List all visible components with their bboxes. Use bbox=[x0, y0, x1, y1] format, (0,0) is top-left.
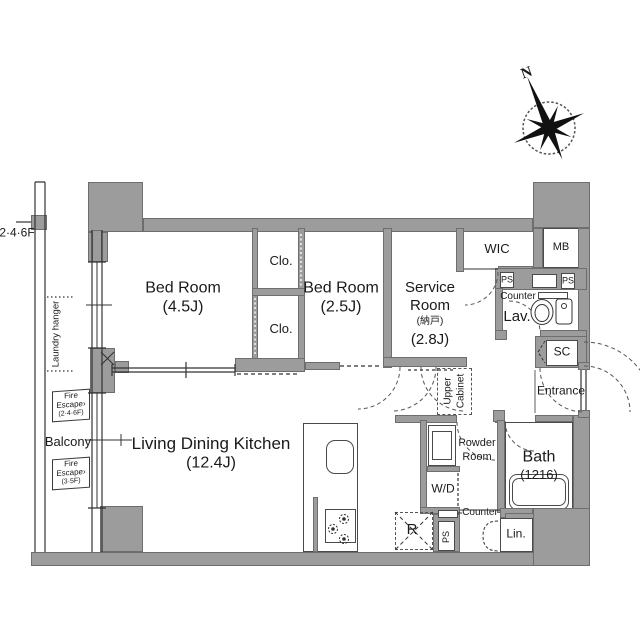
shoe-closet-label: SC bbox=[554, 346, 571, 359]
entrance-label: Entrance bbox=[537, 385, 585, 398]
bathtub-inner bbox=[512, 478, 566, 506]
bath-name: Bath bbox=[523, 450, 556, 467]
bedroom1-size: (4.5J) bbox=[163, 300, 204, 317]
wall-bottom bbox=[31, 552, 590, 566]
balcony-label: Balcony bbox=[45, 435, 91, 449]
ldk-name: Living Dining Kitchen bbox=[132, 435, 291, 453]
bedroom2-door-arc bbox=[358, 367, 400, 409]
ps-label-c: PS bbox=[441, 531, 451, 543]
wall-wd-left bbox=[420, 420, 427, 514]
closet2-label: Clo. bbox=[269, 322, 292, 336]
pillar-bottom-left bbox=[100, 506, 143, 552]
fire-escape-box-2: Fire Escape› (3·5F) bbox=[52, 457, 90, 491]
floor-plan: Fire Escape› (2·4·6F) Fire Escape› (3·5F… bbox=[0, 0, 640, 640]
wall-service-left bbox=[383, 228, 392, 368]
linen-label: Lin. bbox=[506, 528, 525, 541]
closet1-label: Clo. bbox=[269, 254, 292, 268]
service-room-jp: (納戸) bbox=[417, 317, 444, 328]
wall-powder-bath-divider bbox=[497, 420, 505, 513]
wall-closet-mid bbox=[252, 288, 305, 296]
pillar-top-left bbox=[88, 182, 143, 232]
powder-vanity-basin bbox=[432, 431, 452, 460]
wall-closet-bottom bbox=[235, 358, 305, 372]
upper-cabinet-label-2: Cabinet bbox=[456, 374, 467, 408]
entrance-jamb-bottom bbox=[578, 410, 590, 418]
wall-bath-top bbox=[535, 415, 573, 422]
ps-label-b: PS bbox=[562, 276, 574, 285]
wall-bedroom2-bottom bbox=[305, 362, 340, 370]
balcony-rail-lines bbox=[35, 182, 45, 552]
counter-bottom-label: Counter bbox=[462, 508, 498, 519]
wall-kitchen-partition bbox=[313, 497, 318, 552]
counter-top-label: Counter bbox=[500, 292, 536, 303]
bedroom1-partition bbox=[112, 362, 235, 378]
toilet-fixture bbox=[531, 299, 572, 325]
wall-service-bottom bbox=[383, 357, 467, 367]
laundry-hanger-label: Laundry hanger bbox=[51, 301, 62, 368]
mb-label: MB bbox=[553, 242, 570, 254]
wall-top bbox=[143, 218, 533, 232]
upper-cabinet-label-1: Upper bbox=[443, 377, 454, 404]
ps-label-a: PS bbox=[501, 275, 513, 284]
bath-size: (1216) bbox=[520, 468, 558, 482]
wic-door-arc bbox=[465, 272, 498, 305]
fire-escape-1-line3: (2·4·6F) bbox=[53, 409, 89, 419]
wall-left-mid-block bbox=[90, 348, 115, 393]
kitchen-stove bbox=[325, 509, 356, 543]
linen-fold-doors bbox=[483, 521, 498, 551]
washer-dryer-label: W/D bbox=[431, 483, 454, 496]
bedroom1-name: Bed Room bbox=[145, 281, 221, 298]
wall-wd-top bbox=[427, 466, 460, 472]
wall-left-solid bbox=[92, 230, 102, 262]
entrance-jamb-top bbox=[578, 362, 590, 370]
wall-left-arm bbox=[115, 361, 129, 373]
compass-north-label: N bbox=[519, 65, 535, 84]
entrance-outer-arc-large bbox=[584, 342, 640, 412]
wall-lav-bottom-left bbox=[495, 330, 507, 340]
floor-level-label: 2·4·6F bbox=[0, 227, 35, 240]
bedroom2-name: Bed Room bbox=[303, 281, 379, 298]
toilet-cistern bbox=[556, 299, 572, 324]
counter-top-bar bbox=[538, 292, 568, 299]
wall-bottom-right-block bbox=[533, 508, 590, 566]
ldk-size: (12.4J) bbox=[186, 456, 236, 473]
service-door-arc bbox=[392, 367, 436, 411]
service-room-name-2: Room bbox=[410, 298, 450, 314]
entrance-outer-arc-small bbox=[584, 366, 630, 412]
service-room-name-1: Service bbox=[405, 280, 455, 296]
lavatory-label: Lav. bbox=[503, 309, 530, 325]
powder-room-name-1: Powder bbox=[458, 438, 495, 450]
wall-wic-mb-divider bbox=[533, 228, 543, 268]
kitchen-sink bbox=[326, 440, 354, 474]
block-top-right bbox=[533, 182, 590, 228]
wall-wic-left bbox=[456, 228, 464, 272]
toilet-cistern-tap bbox=[562, 304, 567, 309]
counter-bottom-bar2 bbox=[438, 510, 458, 518]
powder-room-name-2: Room bbox=[462, 452, 491, 464]
service-room-size: (2.8J) bbox=[411, 332, 449, 348]
compass-rose bbox=[492, 62, 597, 175]
wic-label: WIC bbox=[484, 242, 509, 256]
refrigerator-label: R bbox=[407, 522, 418, 538]
toilet-seat bbox=[535, 305, 549, 322]
toilet-bowl bbox=[531, 300, 553, 325]
bedroom2-size: (2.5J) bbox=[321, 300, 362, 317]
toilet-cabinet-box2 bbox=[532, 274, 557, 288]
fire-escape-box-1: Fire Escape› (2·4·6F) bbox=[52, 389, 90, 423]
